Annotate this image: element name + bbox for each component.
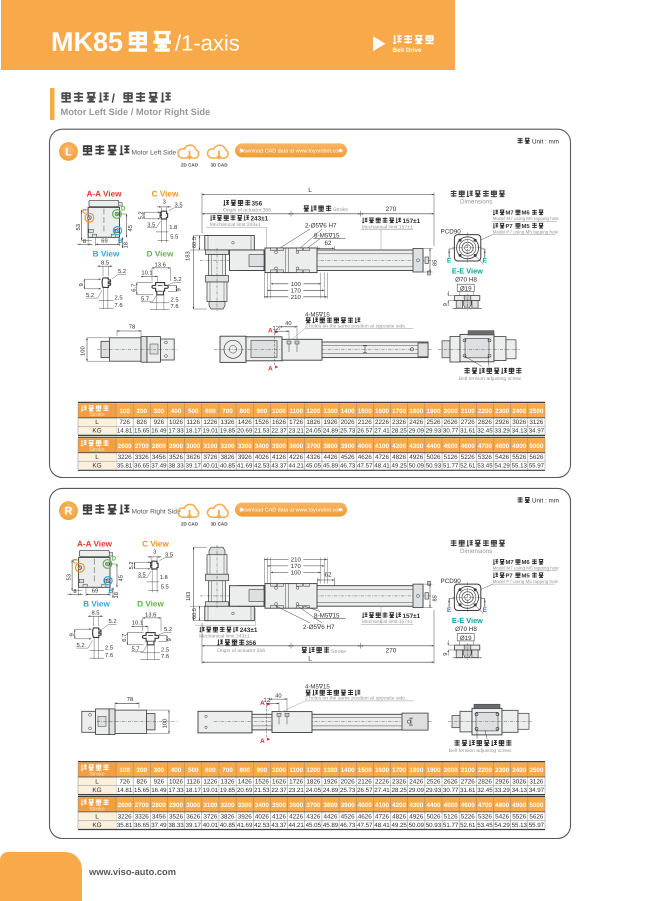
svg-text:2926: 2926	[495, 778, 510, 785]
svg-text:4926: 4926	[409, 454, 424, 461]
svg-text:19.01: 19.01	[203, 428, 219, 435]
svg-text:4200: 4200	[392, 802, 407, 809]
svg-text:200: 200	[136, 408, 147, 415]
svg-text:1226: 1226	[203, 778, 218, 785]
svg-text:www.viso-auto.com: www.viso-auto.com	[88, 867, 176, 877]
svg-text:/1-axis: /1-axis	[175, 31, 240, 56]
svg-text:726: 726	[119, 419, 130, 426]
svg-text:Mechanical limit:243±1: Mechanical limit:243±1	[199, 634, 250, 640]
svg-text:36.65: 36.65	[134, 822, 150, 829]
svg-text:1600: 1600	[375, 767, 390, 774]
svg-text:21.53: 21.53	[254, 428, 270, 435]
svg-text:3900: 3900	[341, 443, 356, 450]
svg-text:D View: D View	[147, 250, 174, 259]
svg-text:2726: 2726	[461, 419, 476, 426]
svg-text:100: 100	[291, 570, 302, 577]
svg-text:4500: 4500	[444, 802, 459, 809]
svg-text:47.57: 47.57	[357, 822, 373, 829]
svg-text:30.77: 30.77	[443, 787, 459, 794]
svg-text:500: 500	[188, 408, 199, 415]
svg-text:34.13: 34.13	[512, 428, 528, 435]
svg-text:53.45: 53.45	[477, 463, 493, 470]
svg-text:200: 200	[136, 767, 147, 774]
svg-text:E-E View: E-E View	[452, 616, 483, 625]
svg-text:100: 100	[162, 719, 169, 729]
svg-text:400: 400	[171, 408, 182, 415]
svg-text:23.21: 23.21	[288, 428, 304, 435]
svg-text:4026: 4026	[255, 454, 270, 461]
svg-text:3000: 3000	[186, 802, 201, 809]
svg-text:5226: 5226	[461, 813, 476, 820]
svg-text:400: 400	[171, 767, 182, 774]
svg-text:2900: 2900	[169, 443, 184, 450]
svg-text:1300: 1300	[323, 767, 338, 774]
svg-text:55.97: 55.97	[529, 822, 545, 829]
svg-text:18: 18	[123, 242, 130, 248]
svg-text:3300: 3300	[238, 802, 253, 809]
svg-text:2126: 2126	[358, 419, 373, 426]
svg-text:9: 9	[78, 283, 85, 286]
svg-text:26.57: 26.57	[357, 428, 373, 435]
svg-text:3200: 3200	[221, 802, 236, 809]
svg-text:49.25: 49.25	[391, 463, 407, 470]
svg-text:L: L	[95, 454, 99, 461]
svg-text:48.41: 48.41	[374, 822, 390, 829]
svg-text:45.89: 45.89	[323, 822, 339, 829]
svg-text:2126: 2126	[358, 778, 373, 785]
svg-text:5326: 5326	[478, 454, 493, 461]
svg-text:1926: 1926	[323, 778, 338, 785]
svg-text:800: 800	[239, 767, 250, 774]
svg-text:3900: 3900	[341, 802, 356, 809]
svg-text:4026: 4026	[255, 813, 270, 820]
svg-text:25.73: 25.73	[340, 787, 356, 794]
svg-text:5000: 5000	[529, 443, 544, 450]
svg-text:Belt Drive: Belt Drive	[393, 47, 422, 54]
svg-text:1626: 1626	[272, 419, 287, 426]
svg-text:3600: 3600	[289, 443, 304, 450]
svg-text:5126: 5126	[444, 454, 459, 461]
svg-text:2-Ø5∇6 H7: 2-Ø5∇6 H7	[303, 624, 335, 631]
svg-text:37.49: 37.49	[151, 463, 167, 470]
svg-text:4426: 4426	[323, 454, 338, 461]
svg-text:6.7: 6.7	[131, 284, 138, 292]
svg-text:170: 170	[291, 288, 302, 295]
svg-text:1200: 1200	[306, 408, 321, 415]
svg-text:2026: 2026	[341, 419, 356, 426]
svg-text:4-M5∇15: 4-M5∇15	[305, 311, 330, 318]
svg-text:85: 85	[433, 260, 439, 266]
svg-text:1026: 1026	[169, 419, 184, 426]
svg-text:45: 45	[128, 225, 134, 231]
svg-text:69: 69	[101, 238, 107, 245]
svg-text:5626: 5626	[529, 454, 544, 461]
svg-text:1100: 1100	[289, 408, 303, 415]
svg-text:1326: 1326	[221, 419, 236, 426]
svg-text:4100: 4100	[375, 443, 390, 450]
svg-text:1800: 1800	[409, 767, 424, 774]
svg-text:4200: 4200	[392, 443, 407, 450]
svg-text:4926: 4926	[409, 813, 424, 820]
svg-text:8.5: 8.5	[101, 260, 109, 267]
svg-text:100: 100	[119, 767, 130, 774]
svg-text:45.05: 45.05	[306, 463, 322, 470]
svg-text:43.37: 43.37	[271, 822, 287, 829]
svg-text:2.5: 2.5	[171, 296, 179, 303]
svg-text:4826: 4826	[392, 813, 407, 820]
svg-text:600: 600	[205, 767, 216, 774]
svg-text:100: 100	[119, 408, 130, 415]
svg-text:3800: 3800	[323, 802, 338, 809]
svg-text:5226: 5226	[461, 454, 476, 461]
svg-text:1300: 1300	[323, 408, 338, 415]
svg-text:38.33: 38.33	[168, 463, 184, 470]
svg-text:48.41: 48.41	[374, 463, 390, 470]
svg-text:23.21: 23.21	[288, 787, 304, 794]
svg-text:2426: 2426	[409, 778, 424, 785]
svg-text:3826: 3826	[221, 813, 236, 820]
svg-text:4126: 4126	[272, 454, 287, 461]
svg-text:4726: 4726	[375, 813, 390, 820]
svg-text:28.25: 28.25	[391, 428, 407, 435]
svg-text:42.53: 42.53	[254, 463, 270, 470]
svg-text:1326: 1326	[221, 778, 236, 785]
svg-text:3200: 3200	[221, 443, 236, 450]
svg-text:78: 78	[127, 696, 133, 703]
svg-text:726: 726	[119, 778, 130, 785]
svg-text:1126: 1126	[186, 419, 200, 426]
svg-text:270: 270	[386, 206, 397, 213]
svg-text:47.57: 47.57	[357, 463, 373, 470]
svg-text:54.29: 54.29	[494, 463, 510, 470]
svg-text:926: 926	[154, 419, 165, 426]
svg-text:4126: 4126	[272, 813, 287, 820]
svg-text:5.2: 5.2	[138, 211, 145, 219]
svg-text:29.93: 29.93	[426, 428, 442, 435]
svg-text:3126: 3126	[529, 419, 544, 426]
svg-text:55.13: 55.13	[512, 463, 528, 470]
svg-text:31.61: 31.61	[460, 428, 476, 435]
svg-text:5.2: 5.2	[86, 292, 94, 299]
svg-text:E: E	[447, 607, 452, 614]
svg-text:22.37: 22.37	[271, 428, 287, 435]
svg-text:4000: 4000	[358, 802, 373, 809]
svg-text:40.01: 40.01	[203, 822, 219, 829]
svg-text:12: 12	[264, 697, 270, 704]
svg-text:183: 183	[186, 592, 192, 601]
svg-text:3700: 3700	[306, 802, 321, 809]
svg-text:1600: 1600	[375, 408, 390, 415]
svg-text:E: E	[483, 258, 488, 265]
svg-text:49.25: 49.25	[391, 822, 407, 829]
svg-text:5026: 5026	[426, 813, 441, 820]
svg-text:3000: 3000	[186, 443, 201, 450]
svg-text:46.73: 46.73	[340, 822, 356, 829]
svg-text:2826: 2826	[478, 778, 493, 785]
svg-text:1500: 1500	[358, 408, 373, 415]
svg-text:78: 78	[129, 324, 135, 331]
svg-text:1400: 1400	[341, 767, 356, 774]
svg-text:1526: 1526	[255, 778, 270, 785]
svg-text:1100: 1100	[289, 767, 303, 774]
svg-text:2800: 2800	[152, 802, 167, 809]
svg-text:60.5: 60.5	[192, 237, 198, 248]
svg-text:1900: 1900	[426, 767, 441, 774]
svg-text:3: 3	[163, 198, 166, 205]
svg-text:34.13: 34.13	[512, 787, 528, 794]
svg-text:2000: 2000	[444, 767, 459, 774]
svg-text:Stroke: Stroke	[89, 806, 105, 812]
svg-text:926: 926	[154, 778, 165, 785]
svg-text:3626: 3626	[186, 813, 201, 820]
svg-text:3100: 3100	[203, 443, 218, 450]
svg-text:2900: 2900	[169, 802, 184, 809]
svg-text:1826: 1826	[306, 419, 321, 426]
svg-text:1700: 1700	[392, 767, 407, 774]
svg-text:L: L	[308, 655, 312, 662]
svg-text:3.5: 3.5	[175, 201, 183, 208]
svg-text:L: L	[95, 813, 99, 820]
svg-text:2500: 2500	[529, 767, 544, 774]
svg-text:210: 210	[291, 557, 302, 564]
svg-text:15.65: 15.65	[134, 787, 150, 794]
svg-text:54.29: 54.29	[494, 822, 510, 829]
svg-text:29.93: 29.93	[426, 787, 442, 794]
svg-text:Belt tension adjusting screw.: Belt tension adjusting screw.	[459, 376, 522, 382]
svg-text:52.61: 52.61	[460, 822, 476, 829]
svg-text:2826: 2826	[478, 419, 493, 426]
svg-text:60.5: 60.5	[192, 608, 198, 619]
svg-text:Motor Left Side: Motor Left Side	[132, 149, 177, 156]
svg-text:4526: 4526	[341, 813, 356, 820]
svg-text:KG: KG	[92, 463, 101, 470]
svg-text:43.37: 43.37	[271, 463, 287, 470]
svg-text:1426: 1426	[238, 419, 253, 426]
svg-text:2626: 2626	[444, 778, 459, 785]
svg-text:2426: 2426	[409, 419, 424, 426]
svg-text:27.41: 27.41	[374, 787, 390, 794]
svg-text:50.09: 50.09	[409, 822, 425, 829]
svg-text:KG: KG	[92, 822, 101, 829]
svg-text:Motor Left Side / Motor Right: Motor Left Side / Motor Right Side	[61, 107, 211, 117]
svg-text:62: 62	[324, 571, 332, 578]
svg-text:25.73: 25.73	[340, 428, 356, 435]
svg-text:356: 356	[252, 200, 263, 207]
svg-text:5526: 5526	[512, 813, 527, 820]
svg-text:4226: 4226	[289, 454, 304, 461]
svg-text:3456: 3456	[152, 454, 167, 461]
svg-text:5526: 5526	[512, 454, 527, 461]
svg-text:55.97: 55.97	[529, 463, 545, 470]
svg-text:41.69: 41.69	[237, 463, 253, 470]
svg-text:A-A View: A-A View	[86, 190, 122, 199]
svg-text:10.1: 10.1	[141, 270, 152, 277]
svg-text:33.29: 33.29	[494, 428, 510, 435]
svg-text:R: R	[65, 506, 73, 518]
svg-text:41.69: 41.69	[237, 822, 253, 829]
svg-text:3100: 3100	[203, 802, 218, 809]
svg-text:44.21: 44.21	[288, 463, 304, 470]
svg-text:Origin of actuator:356: Origin of actuator:356	[223, 208, 271, 214]
svg-text:40.01: 40.01	[203, 463, 219, 470]
svg-text:4226: 4226	[289, 813, 304, 820]
svg-text:8: 8	[83, 238, 86, 245]
svg-text:5426: 5426	[495, 813, 510, 820]
svg-text:16.49: 16.49	[151, 787, 167, 794]
svg-text:4400: 4400	[426, 443, 441, 450]
svg-text:5000: 5000	[529, 802, 544, 809]
svg-text:2.5: 2.5	[115, 294, 123, 301]
svg-text:1426: 1426	[238, 778, 253, 785]
svg-text:Model P7 using M5 tapping hole: Model P7 using M5 tapping hole	[493, 229, 559, 234]
svg-text:1700: 1700	[392, 408, 407, 415]
svg-text:4500: 4500	[444, 443, 459, 450]
svg-text:27.41: 27.41	[374, 428, 390, 435]
svg-text:4526: 4526	[341, 454, 356, 461]
svg-text:4800: 4800	[495, 802, 510, 809]
svg-text:2400: 2400	[512, 767, 527, 774]
svg-text:16.49: 16.49	[151, 428, 167, 435]
svg-text:24.89: 24.89	[323, 428, 339, 435]
svg-text:5426: 5426	[495, 454, 510, 461]
svg-text:7.6: 7.6	[171, 303, 179, 310]
svg-text:D: D	[121, 205, 126, 212]
svg-text:2926: 2926	[495, 419, 510, 426]
svg-text:14.81: 14.81	[117, 428, 133, 435]
svg-text:1400: 1400	[341, 408, 356, 415]
svg-text:3326: 3326	[135, 454, 150, 461]
svg-text:2D CAD: 2D CAD	[181, 163, 199, 168]
svg-text:9: 9	[443, 303, 449, 306]
svg-text:24.05: 24.05	[306, 428, 322, 435]
svg-text:1900: 1900	[426, 408, 441, 415]
svg-text:4326: 4326	[306, 813, 321, 820]
svg-text:2300: 2300	[495, 408, 510, 415]
svg-text:Model M7 using M6 tapping hole: Model M7 using M6 tapping hole	[493, 566, 560, 571]
svg-text:4600: 4600	[461, 802, 476, 809]
svg-text:1000: 1000	[272, 767, 287, 774]
svg-text:14.81: 14.81	[117, 787, 133, 794]
svg-text:34.97: 34.97	[529, 787, 545, 794]
svg-text:4100: 4100	[375, 802, 390, 809]
svg-text:5.5: 5.5	[170, 234, 178, 240]
svg-text:21.53: 21.53	[254, 787, 270, 794]
svg-text:17.33: 17.33	[168, 428, 184, 435]
svg-text:900: 900	[257, 408, 268, 415]
svg-text:3526: 3526	[169, 813, 184, 820]
svg-text:42.53: 42.53	[254, 822, 270, 829]
svg-text:4326: 4326	[306, 454, 321, 461]
svg-text:600: 600	[205, 408, 216, 415]
svg-text:1926: 1926	[323, 419, 338, 426]
svg-text:1826: 1826	[306, 778, 321, 785]
svg-text:3226: 3226	[118, 454, 133, 461]
svg-text:1726: 1726	[289, 419, 304, 426]
svg-text:2526: 2526	[426, 419, 441, 426]
svg-text:3400: 3400	[255, 443, 270, 450]
svg-text:500: 500	[188, 767, 199, 774]
svg-text:826: 826	[136, 419, 147, 426]
svg-text:53: 53	[75, 224, 82, 230]
svg-text:2800: 2800	[152, 443, 167, 450]
svg-text:40.85: 40.85	[220, 463, 236, 470]
svg-text:32.45: 32.45	[477, 787, 493, 794]
svg-text:Ø70 H8: Ø70 H8	[455, 626, 477, 633]
svg-text:50.93: 50.93	[426, 822, 442, 829]
svg-text:3456: 3456	[152, 813, 167, 820]
svg-text:1200: 1200	[306, 767, 321, 774]
svg-text:3326: 3326	[135, 813, 150, 820]
svg-text:2326: 2326	[392, 778, 407, 785]
svg-text:2200: 2200	[478, 408, 493, 415]
svg-text:18.17: 18.17	[186, 428, 202, 435]
svg-text:55.13: 55.13	[512, 822, 528, 829]
svg-text:18.17: 18.17	[186, 787, 202, 794]
svg-text:34.97: 34.97	[529, 428, 545, 435]
svg-text:4700: 4700	[478, 443, 493, 450]
svg-text:3D CAD: 3D CAD	[210, 163, 228, 168]
svg-text:100: 100	[291, 281, 302, 288]
svg-text:MK85: MK85	[51, 27, 123, 57]
svg-text:Stroke: Stroke	[89, 771, 105, 777]
svg-text:19.85: 19.85	[220, 428, 236, 435]
svg-text:39.17: 39.17	[186, 463, 202, 470]
svg-text:/: /	[112, 92, 116, 106]
svg-text:Download CAD data at www.toyor: Download CAD data at www.toyorobot.com	[239, 508, 343, 514]
svg-text:19.85: 19.85	[220, 787, 236, 794]
svg-text:3.5: 3.5	[147, 221, 155, 228]
svg-text:85: 85	[433, 595, 439, 601]
svg-text:2D CAD: 2D CAD	[181, 522, 199, 527]
svg-text:3926: 3926	[238, 813, 253, 820]
svg-text:3626: 3626	[186, 454, 201, 461]
svg-text:E: E	[483, 607, 488, 614]
svg-text:45.05: 45.05	[306, 822, 322, 829]
svg-text:9: 9	[443, 653, 449, 656]
svg-text:3400: 3400	[255, 802, 270, 809]
svg-text:4800: 4800	[495, 443, 510, 450]
svg-text:3026: 3026	[512, 419, 527, 426]
svg-text:52.61: 52.61	[460, 463, 476, 470]
svg-text:Unit : mm: Unit : mm	[532, 139, 559, 146]
svg-text:3926: 3926	[238, 454, 253, 461]
svg-text:1726: 1726	[289, 778, 304, 785]
svg-text:210: 210	[291, 294, 302, 301]
svg-text:Ø70 H8: Ø70 H8	[455, 276, 477, 283]
svg-text:36.65: 36.65	[134, 463, 150, 470]
svg-text:Model P7 using M5 tapping hole: Model P7 using M5 tapping hole	[493, 579, 559, 584]
svg-text:4000: 4000	[358, 443, 373, 450]
svg-text:300: 300	[154, 767, 165, 774]
svg-text:826: 826	[136, 778, 147, 785]
svg-text:5026: 5026	[426, 454, 441, 461]
svg-text:4900: 4900	[512, 443, 527, 450]
svg-text:32.45: 32.45	[477, 428, 493, 435]
svg-text:4426: 4426	[323, 813, 338, 820]
svg-text:3500: 3500	[272, 802, 287, 809]
svg-text:3826: 3826	[221, 454, 236, 461]
svg-text:Dimensions: Dimensions	[460, 199, 492, 206]
svg-text:50.93: 50.93	[426, 463, 442, 470]
svg-text:L: L	[65, 146, 72, 158]
svg-text:2226: 2226	[375, 419, 390, 426]
svg-text:22.37: 22.37	[271, 787, 287, 794]
svg-text:37.49: 37.49	[151, 822, 167, 829]
svg-text:9: 9	[176, 288, 183, 291]
svg-text:40: 40	[285, 320, 291, 327]
svg-text:1026: 1026	[169, 778, 184, 785]
svg-text:5126: 5126	[444, 813, 459, 820]
